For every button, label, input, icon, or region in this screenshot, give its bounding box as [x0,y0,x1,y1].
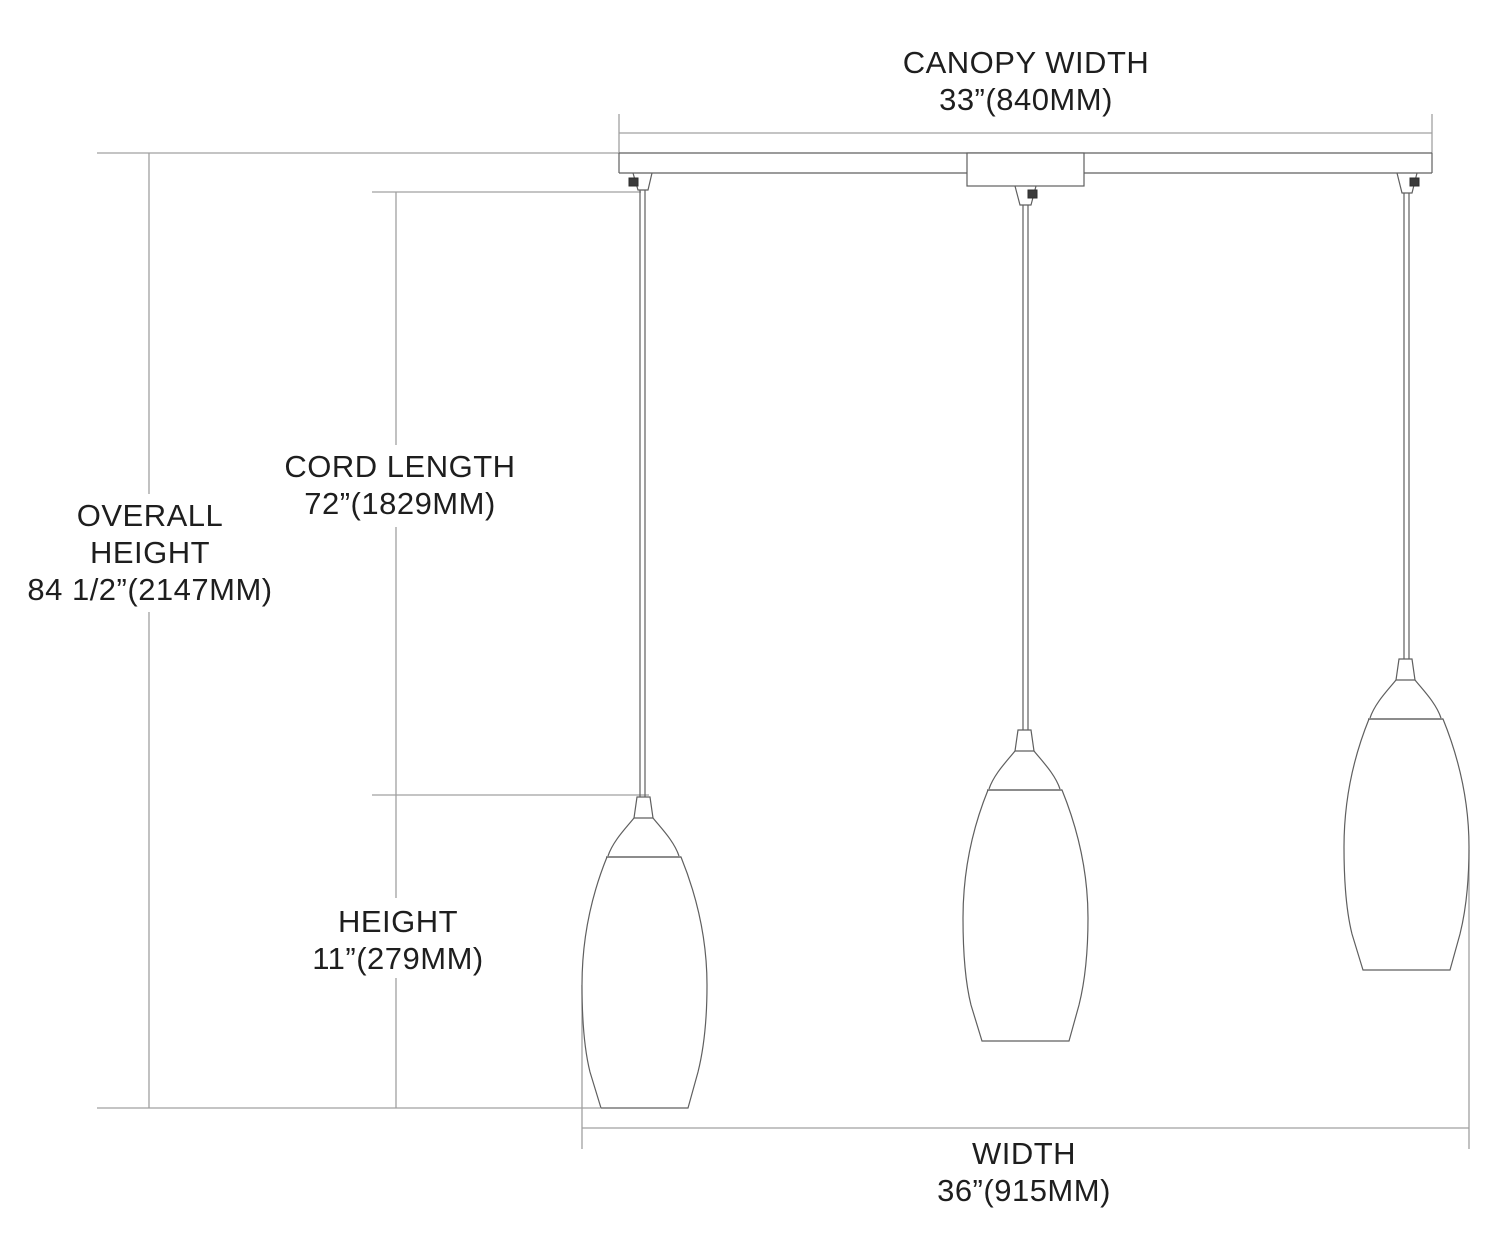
line-drawing [0,0,1500,1257]
pendant-right [1344,659,1469,970]
cord-length-label: CORD LENGTH 72”(1829MM) [250,448,550,522]
cord-length-dimension-line [372,192,649,898]
canopy-width-label: CANOPY WIDTH 33”(840MM) [876,44,1176,118]
overall-height-value: 84 1/2”(2147MM) [0,571,300,608]
width-label: WIDTH 36”(915MM) [874,1135,1174,1209]
pendant-center [963,730,1088,1041]
height-label-line: HEIGHT [248,903,548,940]
pendant-left [582,797,707,1108]
width-label-line: WIDTH [874,1135,1174,1172]
strain-relief-left [629,173,652,190]
height-label: HEIGHT 11”(279MM) [248,903,548,977]
screw-icon [629,178,638,186]
screw-icon [1410,178,1419,186]
canopy-width-dimension-line [619,114,1432,153]
junction-box [967,153,1084,186]
cord-right [1404,193,1409,659]
dimension-diagram: CANOPY WIDTH 33”(840MM) OVERALL HEIGHT 8… [0,0,1500,1257]
canopy-width-label-line: CANOPY WIDTH [876,44,1176,81]
width-value: 36”(915MM) [874,1172,1174,1209]
height-value: 11”(279MM) [248,940,548,977]
cord-length-label-line: CORD LENGTH [250,448,550,485]
cord-length-value: 72”(1829MM) [250,485,550,522]
cord-center [1023,205,1028,730]
canopy-width-value: 33”(840MM) [876,81,1176,118]
strain-relief-center [1015,186,1037,205]
canopy [619,153,1432,186]
screw-icon [1028,190,1037,198]
cord-left [640,190,645,797]
strain-relief-right [1397,173,1419,193]
overall-height-label-line: HEIGHT [0,534,300,571]
